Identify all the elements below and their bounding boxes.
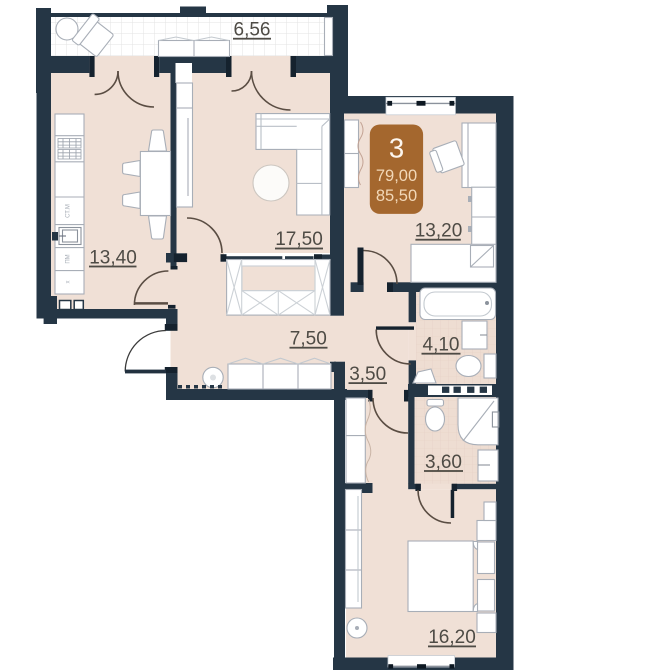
svg-text:85,50: 85,50 — [376, 187, 417, 205]
svg-text:3,60: 3,60 — [425, 452, 462, 473]
svg-text:ПМ: ПМ — [66, 254, 72, 263]
svg-text:3,50: 3,50 — [349, 364, 386, 385]
svg-text:6,56: 6,56 — [234, 20, 271, 41]
svg-text:16,20: 16,20 — [428, 627, 476, 648]
svg-text:4,10: 4,10 — [423, 335, 460, 356]
svg-text:3: 3 — [389, 133, 404, 164]
svg-text:79,00: 79,00 — [376, 167, 417, 185]
svg-text:х: х — [66, 281, 72, 284]
svg-text:СТ.М: СТ.М — [66, 204, 72, 218]
svg-text:13,20: 13,20 — [415, 221, 463, 242]
svg-text:13,40: 13,40 — [89, 247, 137, 268]
svg-text:17,50: 17,50 — [275, 229, 323, 250]
svg-text:7,50: 7,50 — [290, 329, 327, 350]
